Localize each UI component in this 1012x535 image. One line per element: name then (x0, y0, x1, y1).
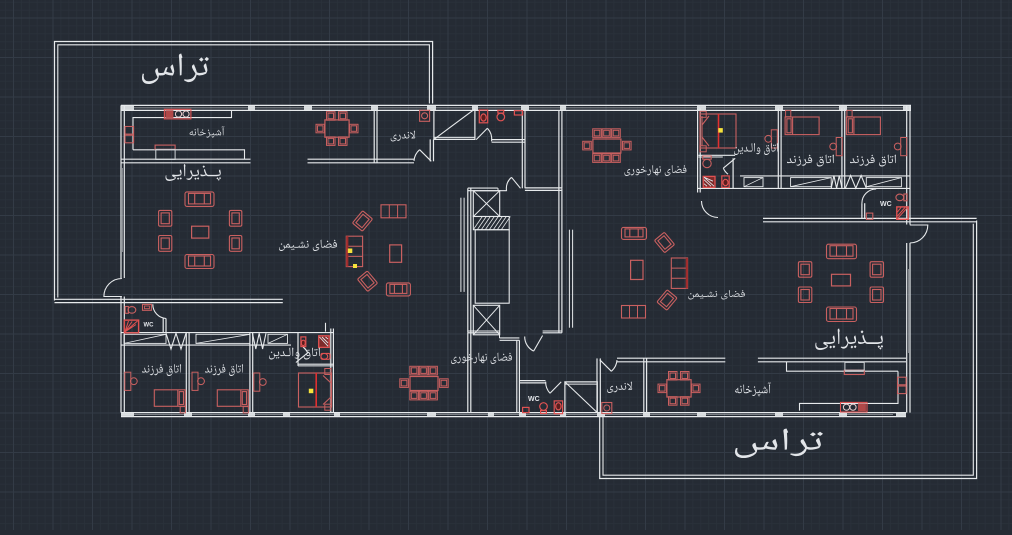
svg-text:WC: WC (144, 323, 155, 329)
svg-text:WC: WC (880, 201, 892, 208)
svg-text:WC: WC (528, 396, 540, 403)
